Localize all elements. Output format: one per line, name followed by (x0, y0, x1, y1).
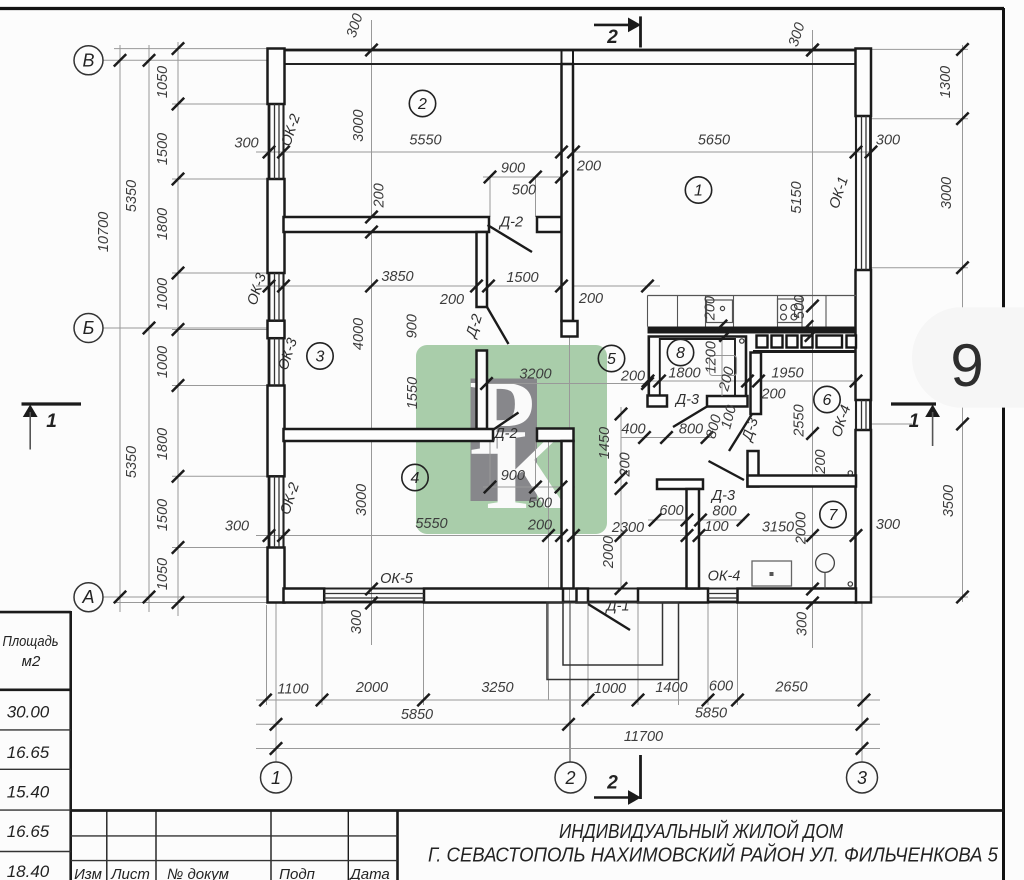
svg-text:400: 400 (621, 422, 645, 438)
svg-text:1800: 1800 (155, 208, 171, 240)
svg-text:300: 300 (795, 612, 811, 636)
svg-text:600: 600 (709, 679, 733, 695)
svg-text:5350: 5350 (124, 446, 140, 478)
svg-text:м2: м2 (22, 653, 41, 670)
svg-text:1: 1 (271, 768, 281, 788)
svg-text:200: 200 (620, 369, 645, 385)
svg-text:3500: 3500 (941, 485, 957, 517)
svg-text:200: 200 (527, 518, 552, 534)
svg-text:2550: 2550 (792, 404, 808, 437)
svg-text:200: 200 (813, 449, 829, 474)
svg-text:3150: 3150 (762, 520, 794, 536)
svg-text:ОК-5: ОК-5 (380, 571, 414, 587)
svg-text:900: 900 (404, 314, 420, 338)
svg-text:1050: 1050 (155, 66, 171, 98)
svg-text:900: 900 (501, 468, 525, 484)
svg-text:9: 9 (950, 332, 983, 399)
svg-text:2: 2 (606, 27, 618, 48)
svg-text:1550: 1550 (405, 377, 421, 409)
svg-text:1000: 1000 (155, 346, 171, 378)
svg-text:1: 1 (694, 183, 703, 200)
svg-text:5550: 5550 (409, 133, 441, 149)
svg-text:11700: 11700 (624, 729, 663, 745)
svg-text:1000: 1000 (594, 681, 626, 697)
svg-text:16.65: 16.65 (7, 822, 50, 841)
svg-text:1800: 1800 (155, 428, 171, 460)
svg-text:1: 1 (46, 411, 57, 432)
svg-text:500: 500 (528, 496, 552, 512)
svg-text:А: А (81, 587, 94, 607)
svg-text:№ докум: № докум (167, 866, 229, 880)
svg-text:В: В (82, 50, 94, 70)
svg-text:Лист: Лист (110, 866, 150, 880)
svg-text:800: 800 (679, 422, 703, 438)
svg-text:Площадь: Площадь (3, 633, 59, 650)
svg-text:200: 200 (371, 183, 387, 208)
svg-text:2000: 2000 (794, 512, 810, 545)
svg-text:ОК-4: ОК-4 (708, 569, 741, 585)
svg-text:1950: 1950 (771, 366, 803, 382)
svg-text:200: 200 (703, 296, 719, 321)
svg-text:200: 200 (760, 387, 785, 403)
svg-text:5850: 5850 (695, 706, 727, 722)
svg-text:3: 3 (857, 768, 867, 788)
svg-text:16.65: 16.65 (7, 743, 50, 762)
svg-text:1200: 1200 (704, 341, 720, 373)
svg-text:3000: 3000 (354, 484, 370, 516)
svg-text:3000: 3000 (351, 110, 367, 142)
svg-text:1800: 1800 (668, 366, 700, 382)
svg-text:900: 900 (501, 161, 525, 177)
svg-text:Г. СЕВАСТОПОЛЬ НАХИМОВСКИЙ РАЙ: Г. СЕВАСТОПОЛЬ НАХИМОВСКИЙ РАЙОН УЛ. ФИЛ… (428, 844, 999, 867)
svg-text:18.40: 18.40 (7, 862, 50, 880)
svg-text:Д-3: Д-3 (710, 488, 735, 504)
svg-text:1400: 1400 (655, 680, 687, 696)
svg-text:800: 800 (712, 504, 736, 520)
svg-text:300: 300 (876, 133, 900, 149)
svg-text:4: 4 (411, 470, 420, 487)
svg-text:4000: 4000 (351, 318, 367, 350)
svg-text:ИНДИВИДУАЛЬНЫЙ ЖИЛОЙ ДОМ: ИНДИВИДУАЛЬНЫЙ ЖИЛОЙ ДОМ (559, 820, 844, 843)
svg-text:5: 5 (607, 351, 616, 368)
svg-text:2000: 2000 (355, 680, 388, 696)
svg-text:1450: 1450 (597, 427, 613, 459)
svg-text:2000: 2000 (601, 536, 617, 569)
svg-text:2: 2 (564, 768, 575, 788)
svg-text:Дата: Дата (348, 866, 390, 880)
svg-text:200: 200 (576, 159, 601, 175)
svg-text:Б: Б (83, 318, 95, 338)
svg-text:3850: 3850 (381, 269, 413, 285)
svg-text:100: 100 (704, 519, 728, 535)
svg-text:1100: 1100 (277, 682, 308, 698)
svg-text:500: 500 (512, 183, 536, 199)
svg-text:1500: 1500 (155, 133, 171, 165)
svg-text:Д-3: Д-3 (674, 392, 699, 408)
svg-text:2: 2 (417, 96, 427, 113)
svg-text:2650: 2650 (774, 680, 807, 696)
svg-text:300: 300 (234, 136, 258, 152)
svg-text:Изм: Изм (74, 866, 102, 880)
svg-text:3250: 3250 (481, 680, 513, 696)
svg-text:1050: 1050 (155, 558, 171, 590)
svg-text:600: 600 (659, 503, 683, 519)
svg-text:15.40: 15.40 (7, 783, 50, 802)
svg-text:3000: 3000 (939, 177, 955, 209)
svg-text:300: 300 (876, 517, 900, 533)
svg-text:Д-1: Д-1 (604, 599, 629, 615)
svg-text:300: 300 (349, 610, 365, 634)
svg-text:1: 1 (909, 411, 920, 432)
svg-text:2300: 2300 (611, 520, 644, 536)
svg-text:5350: 5350 (124, 180, 140, 212)
svg-text:5850: 5850 (401, 707, 433, 723)
svg-text:10700: 10700 (96, 212, 112, 252)
svg-text:2: 2 (606, 773, 618, 794)
svg-text:1000: 1000 (155, 278, 171, 310)
svg-text:7: 7 (829, 507, 839, 524)
svg-text:5650: 5650 (698, 133, 730, 149)
svg-text:1300: 1300 (938, 66, 954, 98)
svg-text:30.00: 30.00 (7, 703, 50, 722)
svg-text:200: 200 (439, 292, 464, 308)
svg-text:5550: 5550 (415, 516, 447, 532)
svg-text:8: 8 (676, 345, 685, 362)
svg-text:1500: 1500 (155, 499, 171, 531)
svg-text:300: 300 (225, 519, 249, 535)
svg-text:5150: 5150 (789, 181, 805, 213)
svg-text:200: 200 (578, 291, 603, 307)
svg-text:6: 6 (823, 392, 832, 409)
svg-text:3: 3 (316, 349, 325, 366)
svg-text:500: 500 (792, 295, 808, 319)
svg-text:200: 200 (618, 452, 634, 477)
svg-text:Подп: Подп (279, 866, 315, 880)
svg-text:1500: 1500 (506, 270, 538, 286)
svg-text:3200: 3200 (519, 367, 551, 383)
svg-text:Д-2: Д-2 (498, 215, 523, 231)
svg-text:Д-2: Д-2 (492, 426, 517, 442)
